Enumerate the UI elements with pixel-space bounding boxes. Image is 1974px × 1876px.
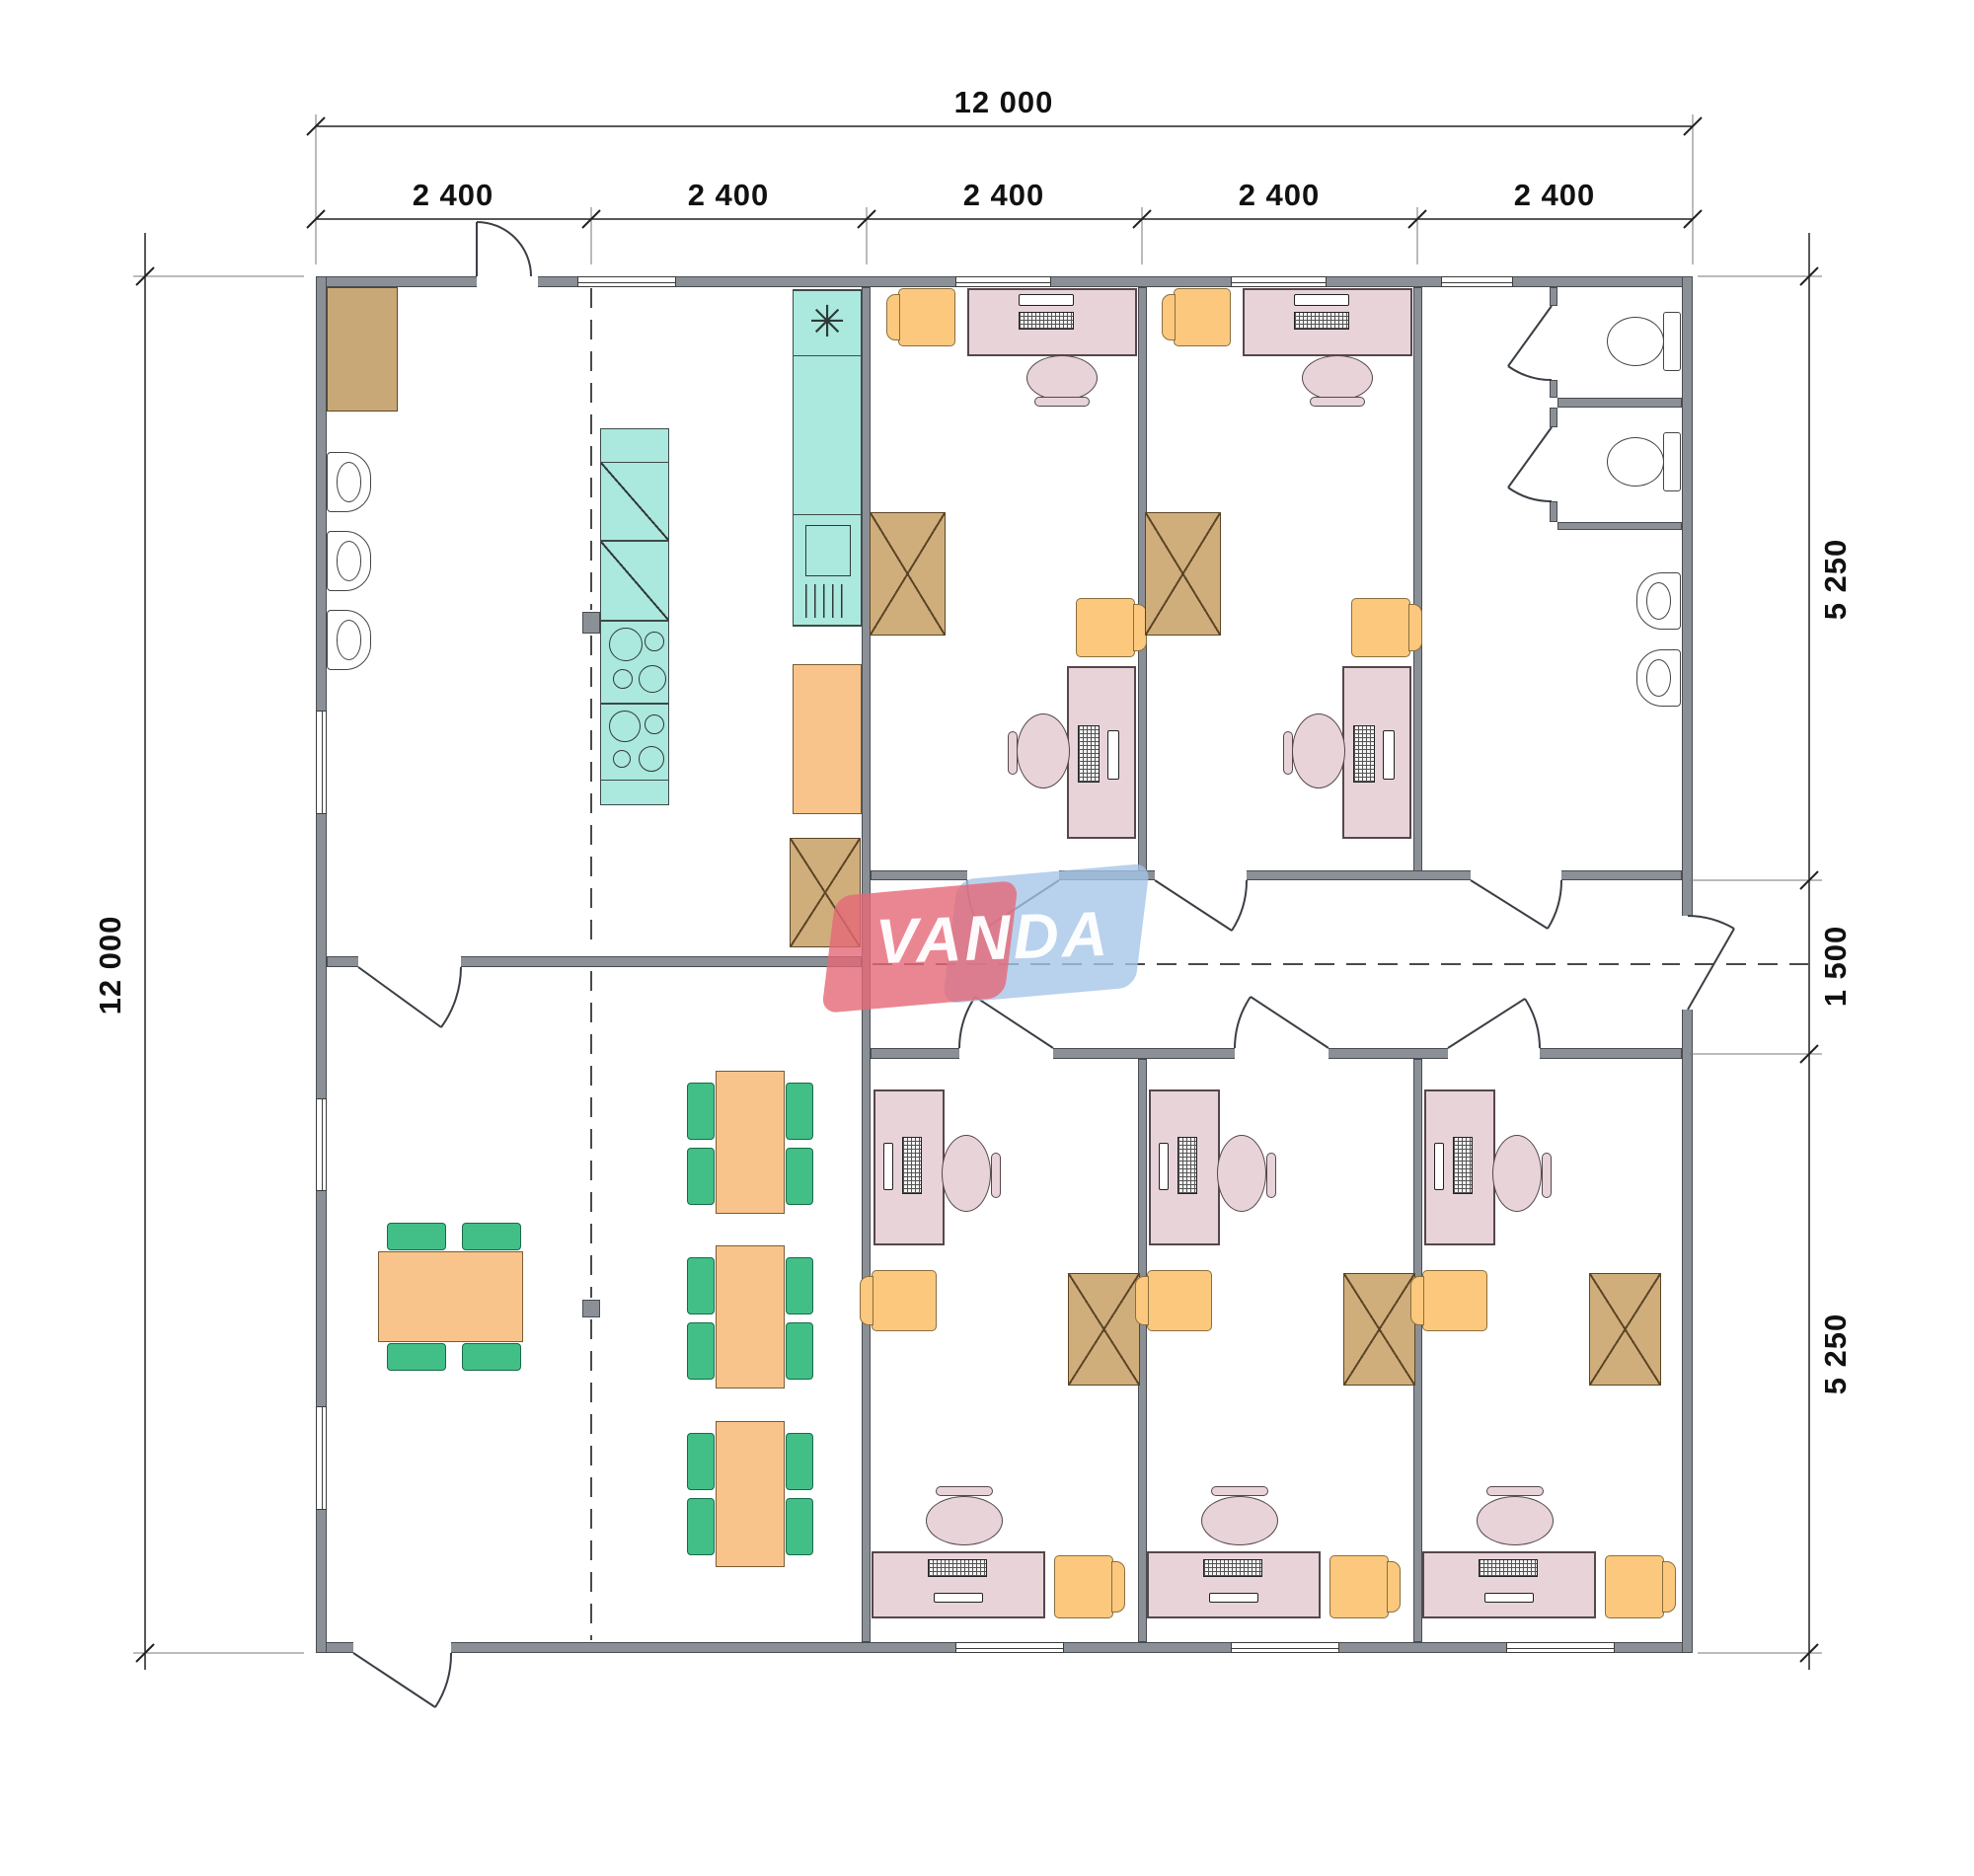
wall-wc-stall xyxy=(1557,398,1682,408)
window xyxy=(1441,276,1513,287)
keyboard-icon xyxy=(1019,312,1074,330)
dining-chair xyxy=(387,1223,446,1250)
storage-crate xyxy=(1068,1273,1140,1386)
toilet-tank xyxy=(1663,432,1681,491)
dimension-label: 2 400 xyxy=(669,178,788,213)
keyboard-icon xyxy=(1353,725,1375,783)
washbasin xyxy=(327,610,371,670)
toilet-tank xyxy=(1663,312,1681,371)
office-chair-back xyxy=(1283,731,1293,775)
storage-crate xyxy=(1343,1273,1415,1386)
office-chair xyxy=(1292,713,1345,788)
dining-chair xyxy=(462,1223,521,1250)
dining-chair xyxy=(387,1343,446,1371)
monitor-icon xyxy=(1434,1143,1444,1190)
column-marker xyxy=(582,612,600,634)
office-chair-back xyxy=(1486,1486,1544,1496)
wall-wc-stall xyxy=(1557,522,1682,530)
monitor-icon xyxy=(1209,1593,1258,1603)
office-chair-back xyxy=(1211,1486,1268,1496)
dining-chair xyxy=(687,1498,715,1555)
kitchen-unit-column: ✳ xyxy=(793,289,862,626)
keyboard-icon xyxy=(1479,1559,1538,1577)
dimension-label: 2 400 xyxy=(1220,178,1338,213)
dishwasher-icon xyxy=(600,462,669,541)
monitor-icon xyxy=(1294,294,1349,306)
wall-wc-stall-stub xyxy=(1550,408,1557,427)
office-chair xyxy=(1017,713,1070,788)
monitor-icon xyxy=(1484,1593,1534,1603)
window xyxy=(955,276,1051,287)
logo-text: VANDA xyxy=(844,891,1143,984)
window xyxy=(316,1406,327,1510)
dining-chair xyxy=(687,1083,715,1140)
washbasin xyxy=(1636,572,1681,630)
armchair xyxy=(1174,288,1231,346)
armchair xyxy=(1329,1555,1389,1618)
toilet xyxy=(1607,317,1664,366)
door-opening xyxy=(477,276,538,287)
keyboard-icon xyxy=(1453,1137,1473,1194)
dimension-label-overall-left: 12 000 xyxy=(93,896,128,1034)
dining-table xyxy=(716,1071,785,1214)
armchair xyxy=(1147,1270,1212,1331)
office-chair-back xyxy=(936,1486,993,1496)
floor-plan: ✳ xyxy=(0,0,1974,1876)
keyboard-icon xyxy=(928,1559,987,1577)
office-chair-back xyxy=(1542,1153,1552,1198)
dining-table xyxy=(378,1251,523,1342)
dining-chair xyxy=(687,1322,715,1380)
door-opening xyxy=(358,956,461,967)
dimension-label: 5 250 xyxy=(1818,1295,1854,1413)
washbasin xyxy=(327,531,371,591)
storage-crate xyxy=(870,512,946,636)
fridge-icon: ✳ xyxy=(794,301,861,344)
window xyxy=(1231,276,1327,287)
door-opening xyxy=(1448,1048,1540,1059)
door-opening xyxy=(353,1642,451,1653)
dining-table xyxy=(716,1421,785,1567)
door-opening xyxy=(1235,1048,1329,1059)
dining-table xyxy=(716,1245,785,1388)
dining-chair xyxy=(786,1148,813,1205)
column-marker xyxy=(582,1300,600,1317)
office-chair xyxy=(1302,355,1373,401)
monitor-icon xyxy=(934,1593,983,1603)
dining-chair xyxy=(786,1322,813,1380)
washbasin xyxy=(327,452,371,512)
keyboard-icon xyxy=(1078,725,1100,783)
armchair xyxy=(1076,598,1135,657)
dining-chair xyxy=(786,1433,813,1490)
armchair xyxy=(872,1270,937,1331)
office-chair xyxy=(1201,1496,1278,1545)
office-chair-back xyxy=(1310,397,1365,407)
storage-crate xyxy=(1589,1273,1661,1386)
dimension-label: 2 400 xyxy=(394,178,512,213)
dimension-label: 2 400 xyxy=(1495,178,1614,213)
wall-wc-stall-stub xyxy=(1550,380,1557,398)
dishwasher-icon xyxy=(600,541,669,621)
window xyxy=(1231,1642,1339,1653)
office-chair xyxy=(942,1135,991,1212)
wall-interior-vertical xyxy=(1413,287,1422,880)
monitor-icon xyxy=(1107,730,1119,780)
dimension-label: 5 250 xyxy=(1818,520,1854,638)
dining-chair xyxy=(786,1257,813,1314)
kitchen-unit-row xyxy=(600,428,669,805)
dining-chair xyxy=(687,1148,715,1205)
window xyxy=(1506,1642,1615,1653)
armchair xyxy=(1054,1555,1113,1618)
dining-chair xyxy=(462,1343,521,1371)
keyboard-icon xyxy=(1294,312,1349,330)
dining-chair xyxy=(687,1257,715,1314)
washbasin xyxy=(1636,649,1681,707)
window xyxy=(955,1642,1064,1653)
monitor-icon xyxy=(1159,1143,1169,1190)
monitor-icon xyxy=(883,1143,893,1190)
office-chair xyxy=(926,1496,1003,1545)
office-chair xyxy=(1477,1496,1554,1545)
toilet xyxy=(1607,437,1664,487)
kitchen-table xyxy=(793,664,862,814)
armchair xyxy=(1605,1555,1664,1618)
office-chair-back xyxy=(1008,731,1018,775)
monitor-icon xyxy=(1019,294,1074,306)
armchair xyxy=(1422,1270,1487,1331)
dimension-label: 1 500 xyxy=(1818,907,1854,1025)
window xyxy=(316,1098,327,1191)
entrance-opening xyxy=(1682,916,1693,1010)
door-opening xyxy=(1155,870,1247,880)
dining-chair xyxy=(687,1433,715,1490)
door-opening xyxy=(1471,870,1561,880)
kitchen-sink-unit xyxy=(793,514,862,627)
cooktop-icon xyxy=(600,704,669,781)
door-opening xyxy=(959,1048,1053,1059)
dimension-label: 2 400 xyxy=(945,178,1063,213)
office-chair xyxy=(1492,1135,1542,1212)
office-chair-back xyxy=(991,1153,1001,1198)
wall-wc-stall-stub xyxy=(1550,501,1557,522)
office-chair-back xyxy=(1034,397,1090,407)
wardrobe xyxy=(327,287,398,412)
storage-crate xyxy=(1145,512,1221,636)
office-chair xyxy=(1217,1135,1266,1212)
armchair xyxy=(898,288,955,346)
office-chair-back xyxy=(1266,1153,1276,1198)
fridge-section: ✳ xyxy=(793,290,862,356)
dimension-label-overall-top: 12 000 xyxy=(935,85,1073,120)
dining-chair xyxy=(786,1083,813,1140)
office-chair xyxy=(1026,355,1098,401)
window xyxy=(577,276,676,287)
keyboard-icon xyxy=(902,1137,922,1194)
keyboard-icon xyxy=(1203,1559,1262,1577)
window xyxy=(316,711,327,814)
monitor-icon xyxy=(1383,730,1395,780)
cooktop-icon xyxy=(600,621,669,704)
wall-wc-stall-stub xyxy=(1550,287,1557,306)
armchair xyxy=(1351,598,1410,657)
keyboard-icon xyxy=(1177,1137,1197,1194)
dining-chair xyxy=(786,1498,813,1555)
